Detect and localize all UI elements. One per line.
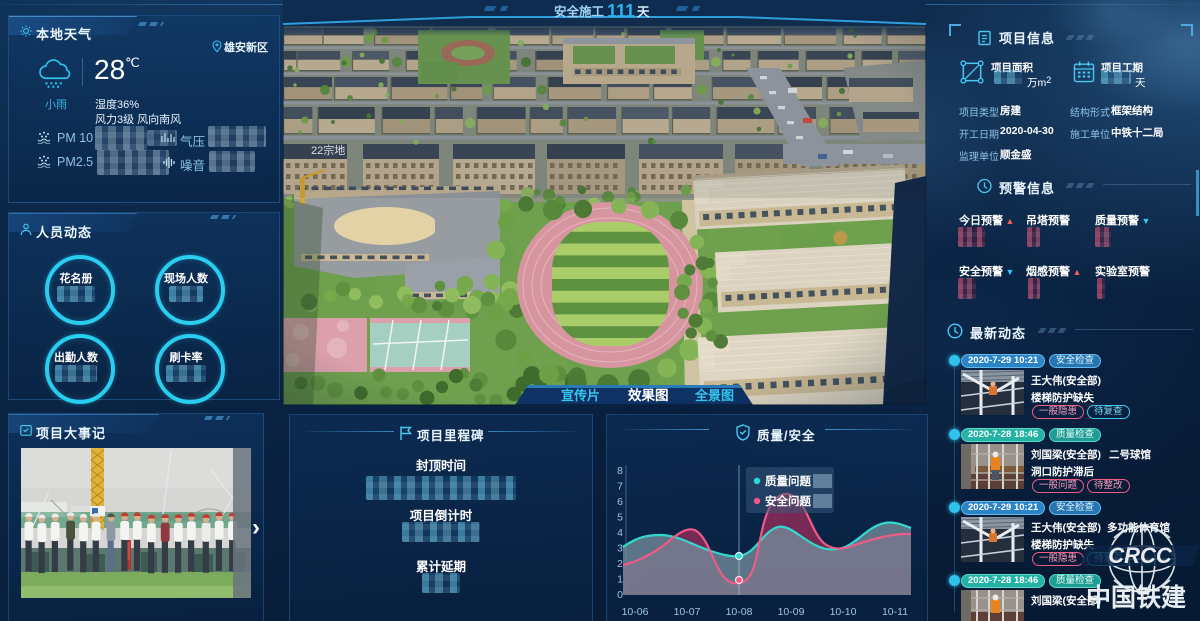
svg-text:8: 8 <box>617 465 623 477</box>
svg-text:安全问题: 安全问题 <box>765 494 811 508</box>
svg-text:10-11: 10-11 <box>882 606 908 618</box>
svg-text:10-10: 10-10 <box>830 606 857 618</box>
svg-text:1: 1 <box>617 574 623 586</box>
svg-text:2: 2 <box>617 558 623 570</box>
svg-text:10-06: 10-06 <box>622 606 649 618</box>
svg-text:10-08: 10-08 <box>726 606 753 618</box>
svg-text:10-09: 10-09 <box>778 606 805 618</box>
svg-text:5: 5 <box>617 512 623 524</box>
svg-text:安全施工: 安全施工 <box>554 4 605 19</box>
svg-text:7: 7 <box>617 481 623 493</box>
svg-text:0: 0 <box>617 589 623 601</box>
svg-text:6: 6 <box>617 496 623 508</box>
svg-text:天: 天 <box>637 5 650 19</box>
svg-text:CRCC: CRCC <box>1108 543 1173 568</box>
svg-text:10-07: 10-07 <box>674 606 701 618</box>
svg-text:质量问题: 质量问题 <box>765 474 811 488</box>
svg-text:4: 4 <box>617 527 623 539</box>
svg-text:3: 3 <box>617 543 623 555</box>
svg-text:111: 111 <box>607 1 635 21</box>
